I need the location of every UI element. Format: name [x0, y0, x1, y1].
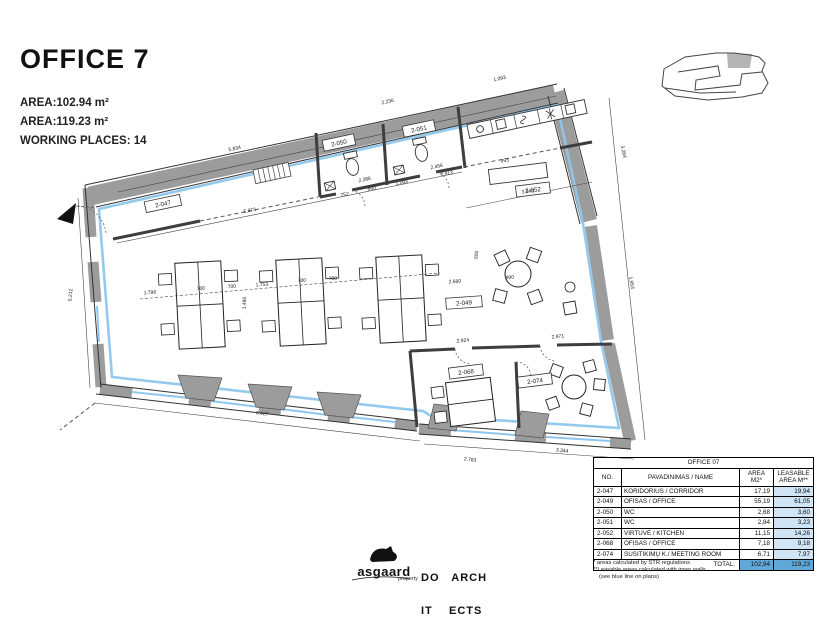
room-label-2-049: 2-049 — [456, 299, 473, 307]
svg-text:700: 700 — [329, 276, 338, 283]
cell-area: 55,19 — [740, 497, 774, 508]
desk-cluster-2 — [259, 257, 342, 347]
desk-cluster-3 — [359, 254, 442, 344]
table-row: 2-047KORIDORIUS / CORRIDOR17,1919,94 — [594, 486, 814, 497]
area-line-1: AREA:102.94 m² — [20, 97, 109, 109]
svg-text:752: 752 — [340, 191, 350, 199]
doit-architects-logo: DO ARCH IT ECTS — [421, 551, 487, 628]
cell-no: 2-047 — [594, 486, 622, 497]
svg-text:2.680: 2.680 — [448, 279, 461, 286]
cell-leasable: 3,23 — [774, 518, 814, 529]
cell-area: 7,18 — [740, 539, 774, 550]
desk-cluster-1 — [158, 260, 241, 350]
doit-logo-line2: IT ECTS — [421, 606, 487, 617]
table-row: 2-051WC2,843,23 — [594, 518, 814, 529]
svg-text:1.798: 1.798 — [143, 290, 156, 297]
footnote-1: * areas calculated by STR regulations — [593, 560, 706, 567]
cell-no: 2-068 — [594, 539, 622, 550]
svg-text:993: 993 — [500, 157, 510, 165]
cell-no: 2-074 — [594, 549, 622, 560]
page-title: OFFICE 7 — [20, 44, 150, 75]
col-header-name: PAVADINIMAS / NAME — [622, 468, 740, 486]
cell-area: 2,68 — [740, 507, 774, 518]
working-places: WORKING PLACES: 14 — [20, 135, 147, 147]
svg-text:2.236: 2.236 — [381, 98, 395, 107]
cell-area: 11,15 — [740, 528, 774, 539]
col-header-area: AREA M2* — [740, 468, 774, 486]
cell-area: 17,19 — [740, 486, 774, 497]
cell-name: KORIDORIUS / CORRIDOR — [622, 486, 740, 497]
cell-leasable: 61,05 — [774, 497, 814, 508]
cell-area: 6,71 — [740, 549, 774, 560]
cell-name: WC — [622, 507, 740, 518]
col-header-leasable: LEASABLE AREA M** — [774, 468, 814, 486]
svg-text:5.873: 5.873 — [243, 207, 257, 215]
svg-text:6.427: 6.427 — [256, 410, 269, 418]
cell-no: 2-051 — [594, 518, 622, 529]
cell-leasable: 3,60 — [774, 507, 814, 518]
svg-text:700: 700 — [228, 284, 237, 291]
cell-no: 2-050 — [594, 507, 622, 518]
table-footnotes: * areas calculated by STR regulations **… — [593, 560, 706, 581]
svg-text:2.971: 2.971 — [551, 333, 564, 340]
meeting-table-2-074 — [546, 360, 606, 417]
svg-text:600: 600 — [474, 250, 481, 259]
svg-text:3.284: 3.284 — [619, 145, 628, 159]
svg-text:5.212: 5.212 — [68, 288, 75, 301]
svg-text:1.953: 1.953 — [627, 276, 635, 290]
footnote-3: (see blue line on plans) — [593, 574, 706, 581]
svg-text:1.093: 1.093 — [395, 179, 409, 187]
table-row: 2-052VIRTUVĖ / KITCHEN11,1514,26 — [594, 528, 814, 539]
svg-text:1.093: 1.093 — [493, 75, 507, 84]
area-line-2: AREA:119.23 m² — [20, 116, 108, 128]
cell-name: OFISAS / OFFICE — [622, 539, 740, 550]
svg-text:900: 900 — [506, 275, 515, 282]
table-row: 2-074SUSITIKIMŲ K./ MEETING ROOM6,717,97 — [594, 549, 814, 560]
cell-name: WC — [622, 518, 740, 529]
svg-text:700: 700 — [298, 278, 307, 285]
svg-text:2.286: 2.286 — [358, 176, 372, 185]
cell-name: VIRTUVĖ / KITCHEN — [622, 528, 740, 539]
svg-text:1.490: 1.490 — [242, 296, 248, 309]
svg-text:700: 700 — [197, 286, 206, 293]
doit-logo-line1: DO ARCH — [421, 573, 487, 584]
table-row: 2-050WC2,683,60 — [594, 507, 814, 518]
total-area: 102,94 — [740, 560, 774, 571]
cell-leasable: 14,26 — [774, 528, 814, 539]
cell-no: 2-052 — [594, 528, 622, 539]
cell-name: OFISAS / OFFICE — [622, 497, 740, 508]
svg-text:650: 650 — [367, 185, 377, 193]
desks-2-068 — [431, 377, 496, 428]
svg-text:2.783: 2.783 — [464, 456, 477, 464]
footnote-2: **Leasable areas calculated with inner w… — [593, 567, 706, 574]
svg-text:2.924: 2.924 — [456, 337, 469, 344]
svg-text:2.913: 2.913 — [440, 170, 454, 178]
room-area-table: OFFICE 07 NO. PAVADINIMAS / NAME AREA M2… — [593, 457, 814, 571]
table-row: 2-068OFISAS / OFFICE7,189,18 — [594, 539, 814, 550]
cell-name: SUSITIKIMŲ K./ MEETING ROOM — [622, 549, 740, 560]
cell-leasable: 9,18 — [774, 539, 814, 550]
col-header-no: NO. — [594, 468, 622, 486]
cell-area: 2,84 — [740, 518, 774, 529]
asgaard-logo: asgaard property — [344, 543, 424, 582]
svg-text:1.753: 1.753 — [255, 282, 268, 289]
cell-no: 2-049 — [594, 497, 622, 508]
total-leasable: 119,23 — [774, 560, 814, 571]
table-row: 2-049OFISAS / OFFICE55,1961,05 — [594, 497, 814, 508]
table-title: OFFICE 07 — [594, 458, 814, 469]
cell-leasable: 7,97 — [774, 549, 814, 560]
key-plan-inset — [662, 53, 768, 100]
cell-leasable: 19,94 — [774, 486, 814, 497]
